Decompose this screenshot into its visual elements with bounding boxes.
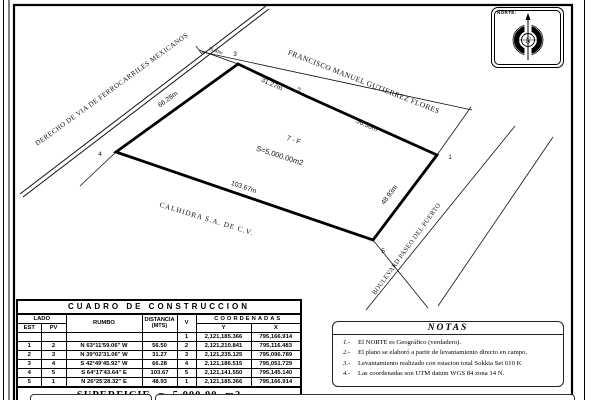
- table-cell: 1: [17, 342, 41, 351]
- lot-number-label: 7 - F: [286, 135, 302, 146]
- table-row: 5 1 N 26°25'28.32" E 48.93 1 2,121,185.3…: [17, 378, 301, 388]
- table-cell: 2,121,141.550: [196, 369, 251, 378]
- compass-rose-icon: N: [492, 8, 563, 67]
- note-item: 2.- El plano se elaboró a partir de leva…: [343, 349, 555, 356]
- note-text: Las coordenadas son UTM datum WGS 84 zon…: [358, 370, 504, 377]
- table-cell: N 63°11'59.06" W: [66, 342, 142, 351]
- table-cell: 2,121,185.366: [196, 333, 251, 342]
- table-cell: [41, 333, 66, 342]
- table-row: 1 2 N 63°11'59.06" W 56.50 2 2,121,210.8…: [17, 342, 301, 351]
- titleblock-box-right: [155, 394, 575, 400]
- table-cell: 48.93: [142, 378, 177, 388]
- table-title: CUADRO DE CONSTRUCCION: [17, 300, 301, 314]
- table-cell: 103.67: [142, 369, 177, 378]
- table-row: 1 2,121,185.366 795,166.914: [17, 333, 301, 342]
- boulevard-line-east: [438, 137, 553, 306]
- table-cell: [17, 333, 41, 342]
- railroad-name-label: DERECHO DE VIA DE FERROCARRILES MEXICANO…: [34, 31, 190, 147]
- table-cell: 4: [177, 360, 196, 369]
- header-rumbo: RUMBO: [66, 314, 142, 333]
- table-cell: 795,166.914: [251, 378, 301, 388]
- table-cell: 795,166.914: [251, 333, 301, 342]
- table-cell: 4: [41, 360, 66, 369]
- table-cell: 795,096.789: [251, 351, 301, 360]
- header-x: X: [251, 324, 301, 333]
- table-cell: 56.50: [142, 342, 177, 351]
- note-item: 4.- Las coordenadas son UTM datum WGS 84…: [343, 370, 555, 377]
- table-cell: 2,121,210.841: [196, 342, 251, 351]
- table-cell: 2: [41, 342, 66, 351]
- north-street-name-label: FRANCISCO MANUEL GUTIERREZ FLORES: [287, 48, 441, 116]
- table-cell: 1: [177, 333, 196, 342]
- table-cell: S 64°17'43.64" E: [66, 369, 142, 378]
- table-cell: 66.28: [142, 360, 177, 369]
- table-cell: N 26°25'28.32" E: [66, 378, 142, 388]
- header-coordenadas: COORDENADAS: [196, 314, 301, 324]
- note-text: El NORTE es Geográfico (verdadero).: [358, 339, 461, 346]
- table-cell: [142, 333, 177, 342]
- vertex-2-label: 2: [297, 87, 301, 94]
- table-cell: 795,116.483: [251, 342, 301, 351]
- table-cell: 2,121,185.366: [196, 378, 251, 388]
- table-row: 4 5 S 64°17'43.64" E 103.67 5 2,121,141.…: [17, 369, 301, 378]
- note-item: 3.- Levantamiento realizado con estacion…: [343, 360, 555, 367]
- table-cell: 4: [17, 369, 41, 378]
- note-number: 4.-: [343, 370, 358, 377]
- notes-title: NOTAS: [333, 322, 563, 335]
- north-arrow-box: NORTE: N: [491, 7, 564, 68]
- header-distancia: DISTANCIA (MTS): [142, 314, 177, 333]
- edge-1-2-distance-label: 56.50m: [355, 118, 379, 134]
- table-cell: [66, 333, 142, 342]
- table-cell: 31.27: [142, 351, 177, 360]
- extension-vertex-1: [437, 107, 471, 155]
- note-item: 1.- El NORTE es Geográfico (verdadero).: [343, 339, 555, 346]
- note-number: 3.-: [343, 360, 358, 367]
- table-cell: 3: [17, 360, 41, 369]
- table-cell: 5: [17, 378, 41, 388]
- street-lines: [80, 46, 553, 310]
- table-cell: 2: [177, 342, 196, 351]
- note-number: 2.-: [343, 349, 358, 356]
- table-row: 3 4 S 42°49'45.92" W 66.28 4 2,121,186.5…: [17, 360, 301, 369]
- lot-area-label: S=5,000.00m2: [255, 144, 304, 168]
- table-cell: 5: [177, 369, 196, 378]
- header-v: V: [177, 314, 196, 333]
- header-distancia-line2: (MTS): [143, 324, 177, 330]
- table-cell: 1: [177, 378, 196, 388]
- note-text: Levantamiento realizado con estacion tot…: [358, 360, 521, 367]
- header-lado: LADO: [17, 314, 66, 324]
- offset-tick: [196, 46, 202, 54]
- table-row: 2 3 N 39°02'31.06" W 31.27 3 2,121,235.1…: [17, 351, 301, 360]
- note-text: El plano se elaboró a partir de levantam…: [358, 349, 527, 356]
- note-number: 1.-: [343, 339, 358, 346]
- table-cell: 2,121,186.515: [196, 360, 251, 369]
- construction-table: CUADRO DE CONSTRUCCION LADO RUMBO DISTAN…: [16, 299, 302, 400]
- north-street-line: [202, 52, 472, 110]
- table-cell: 2: [17, 351, 41, 360]
- table-cell: 5: [41, 369, 66, 378]
- railroad-line: [20, 6, 269, 197]
- header-est: EST: [17, 324, 41, 333]
- table-cell: 795,051.729: [251, 360, 301, 369]
- south-owner-label: CALHIDRA S.A. DE C.V.: [158, 201, 254, 237]
- header-y: Y: [196, 324, 251, 333]
- compass-n-letter: N: [524, 36, 531, 45]
- table-cell: N 39°02'31.06" W: [66, 351, 142, 360]
- table-cell: S 42°49'45.92" W: [66, 360, 142, 369]
- survey-plan-sheet: DERECHO DE VIA DE FERROCARRILES MEXICANO…: [0, 0, 600, 400]
- edge-3-4-distance-label: 66.28m: [157, 90, 180, 109]
- table-cell: 3: [41, 351, 66, 360]
- header-pv: PV: [41, 324, 66, 333]
- table-cell: 795,145.140: [251, 369, 301, 378]
- titleblock-box-left: [30, 394, 152, 400]
- vertex-3-label: 3: [233, 51, 237, 58]
- table-cell: 1: [41, 378, 66, 388]
- edge-5-1-distance-label: 48.93m: [380, 184, 399, 207]
- table-cell: 2,121,235.125: [196, 351, 251, 360]
- notes-box: NOTAS 1.- El NORTE es Geográfico (verdad…: [332, 321, 564, 387]
- vertex-5-label: 5: [381, 248, 385, 255]
- vertex-4-label: 4: [98, 151, 102, 158]
- table-cell: 3: [177, 351, 196, 360]
- vertex-1-label: 1: [448, 154, 452, 161]
